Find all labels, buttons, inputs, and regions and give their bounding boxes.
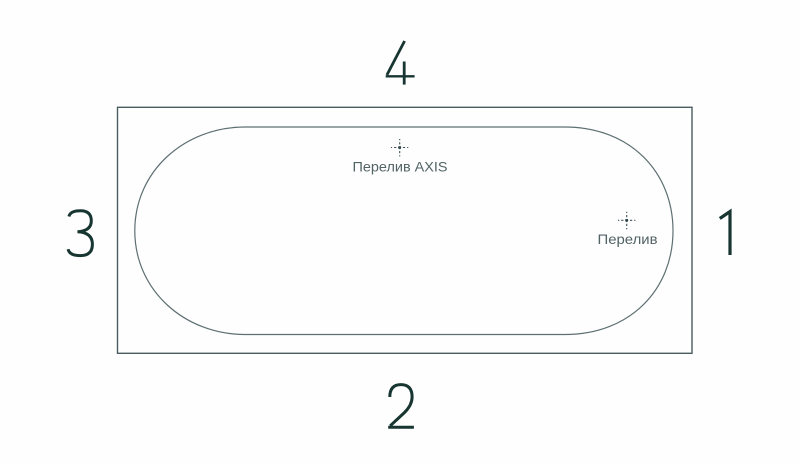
svg-text:Перелив: Перелив	[598, 232, 658, 248]
svg-text:Перелив AXIS: Перелив AXIS	[353, 160, 448, 176]
